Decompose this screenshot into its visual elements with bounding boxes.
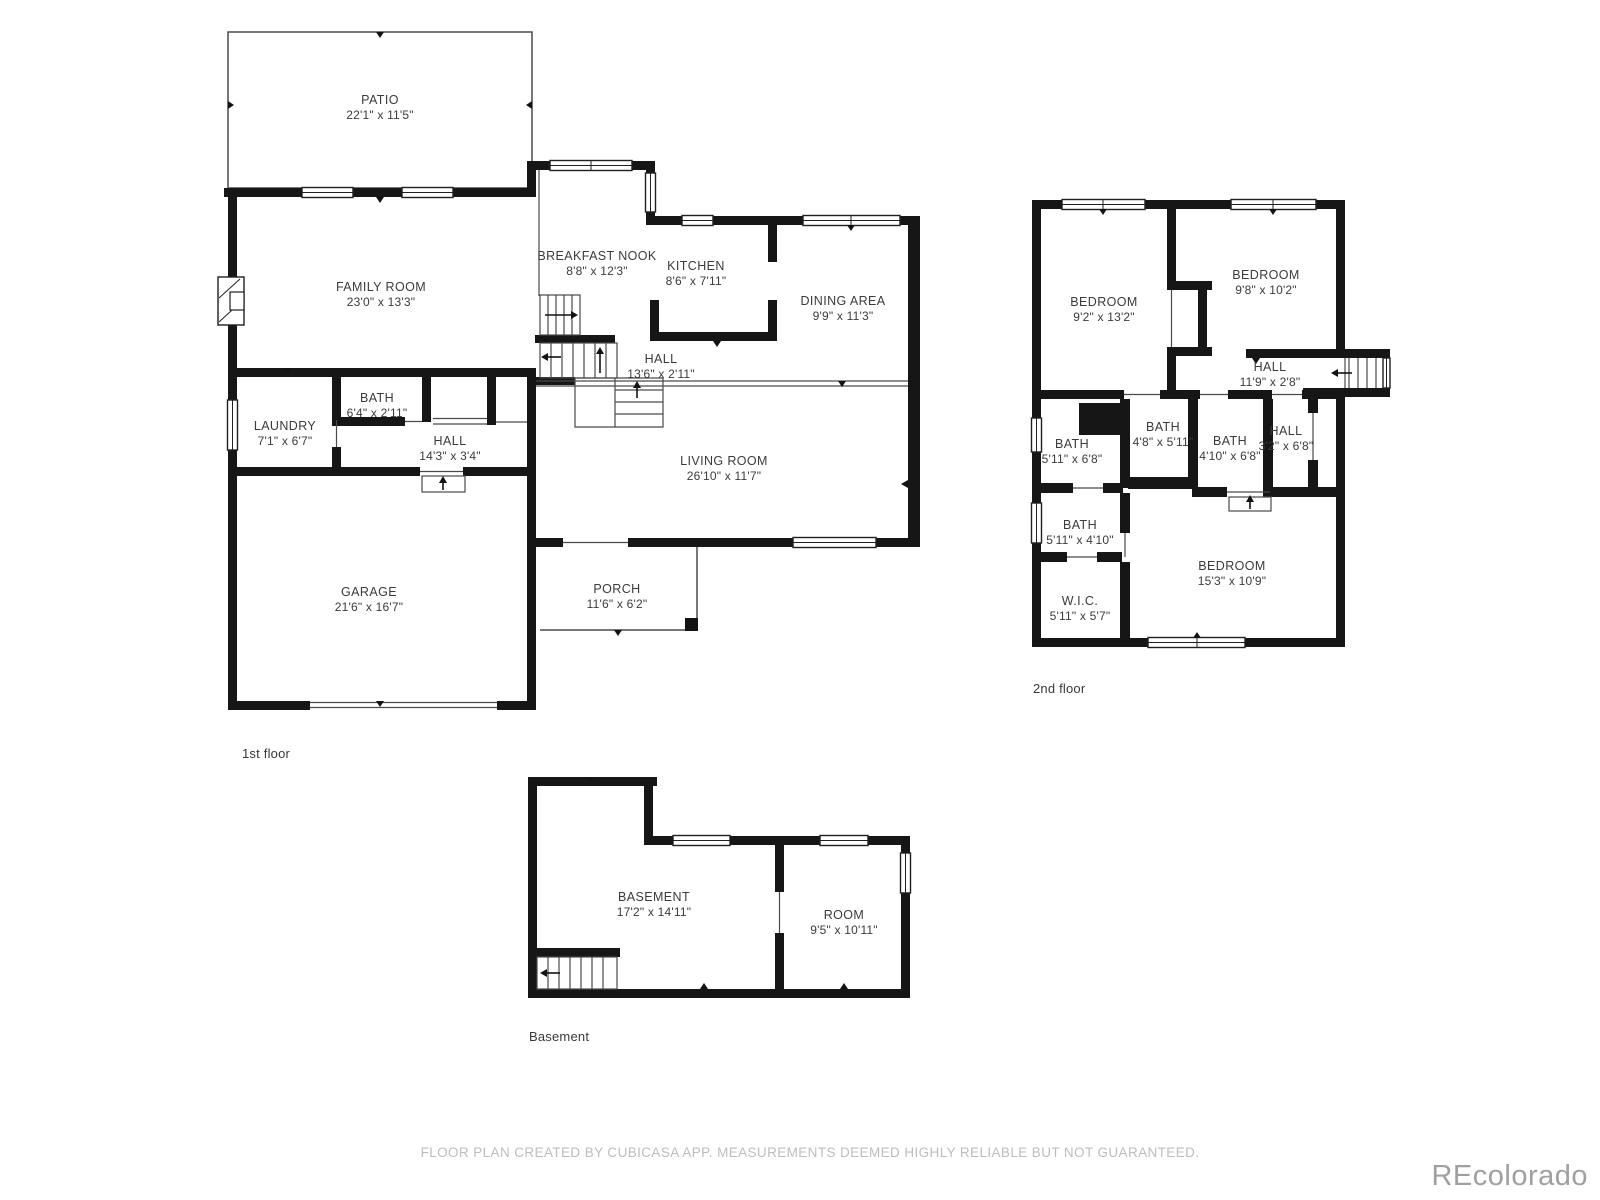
basement-walls xyxy=(528,777,910,998)
staircase-basement xyxy=(537,957,617,989)
basement-ticks xyxy=(586,777,848,989)
floor-caption-1st-floor: 1st floor xyxy=(242,746,290,761)
shower-block xyxy=(1079,403,1123,435)
room-label-bath-1: BATH 5'11" x 6'8" xyxy=(1042,437,1103,467)
basement-plan xyxy=(515,755,925,1055)
room-label-laundry: LAUNDRY 7'1" x 6'7" xyxy=(254,419,316,449)
room-label-family-room: FAMILY ROOM 23'0" x 13'3" xyxy=(336,280,426,310)
room-label-bedroom-1: BEDROOM 9'2" x 13'2" xyxy=(1070,295,1137,325)
room-label-bath-3: BATH 4'10" x 6'8" xyxy=(1199,434,1261,464)
room-label-basement: BASEMENT 17'2" x 14'11" xyxy=(617,890,691,920)
room-label-porch: PORCH 11'6" x 6'2" xyxy=(587,582,648,612)
room-label-breakfast-nook: BREAKFAST NOOK 8'8" x 12'3" xyxy=(537,249,656,279)
first-floor-walls xyxy=(224,161,920,710)
fireplace xyxy=(218,277,244,325)
room-label-bedroom-2: BEDROOM 9'8" x 10'2" xyxy=(1232,268,1299,298)
room-label-hall-center: HALL 13'6" x 2'11" xyxy=(627,352,695,382)
room-label-bath-2: BATH 4'8" x 5'11" xyxy=(1133,420,1194,450)
room-label-wic: W.I.C. 5'11" x 5'7" xyxy=(1050,594,1111,624)
room-label-garage: GARAGE 21'6" x 16'7" xyxy=(335,585,403,615)
room-label-hall-upper: HALL 11'9" x 2'8" xyxy=(1240,360,1301,390)
bedroom-door xyxy=(1229,495,1271,511)
first-floor-plan xyxy=(200,20,930,760)
floor-caption-basement: Basement xyxy=(529,1029,589,1044)
room-label-bath-4: BATH 5'11" x 4'10" xyxy=(1046,518,1114,548)
garage-entry-door xyxy=(422,476,465,492)
room-label-bath-first-floor: BATH 6'4" x 2'11" xyxy=(347,391,408,421)
room-label-hall-strip: HALL 14'3" x 3'4" xyxy=(419,434,481,464)
room-label-patio: PATIO 22'1" x 11'5" xyxy=(346,93,414,123)
disclaimer-text: FLOOR PLAN CREATED BY CUBICASA APP. MEAS… xyxy=(20,1145,1600,1160)
watermark-recolorado: REcolorado xyxy=(1431,1160,1588,1193)
room-label-room: ROOM 9'5" x 10'11" xyxy=(810,908,878,938)
floor-plan-page: { "title": "Residential floor plan", "co… xyxy=(0,0,1600,1200)
room-label-bedroom-3: BEDROOM 15'3" x 10'9" xyxy=(1198,559,1266,589)
staircase-second-floor xyxy=(1331,358,1376,388)
room-label-kitchen: KITCHEN 8'6" x 7'11" xyxy=(666,259,727,289)
room-label-living-room: LIVING ROOM 26'10" x 11'7" xyxy=(680,454,768,484)
room-label-dining-area: DINING AREA 9'9" x 11'3" xyxy=(801,294,886,324)
floor-caption-2nd-floor: 2nd floor xyxy=(1033,681,1085,696)
room-label-hall-small: HALL 3'2" x 6'8" xyxy=(1259,424,1314,454)
